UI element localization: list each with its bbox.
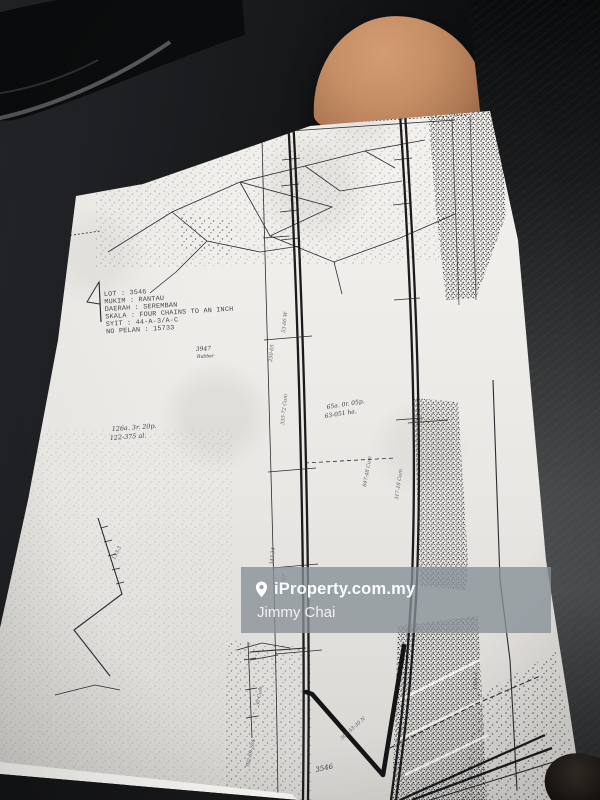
measurement: 1000-0 [473, 671, 480, 690]
door-panel-shape [0, 0, 245, 121]
measurement: 53-00 W [281, 311, 289, 334]
watermark-brand: iProperty.com.my [274, 580, 415, 599]
lot-3947-sub-label: Rubber [196, 353, 215, 360]
measurement: 343-34 [269, 547, 277, 565]
location-pin-icon [255, 581, 268, 598]
title-block: LOT : 3546 MUKIM : RANTAU DAERAH : SEREM… [104, 283, 235, 336]
measurement: 335-72 Cum [280, 394, 289, 426]
watermark-brand-row: iProperty.com.my [255, 580, 551, 599]
car-interior-photo: LOT : 3546 MUKIM : RANTAU DAERAH : SEREM… [0, 0, 600, 800]
measurement: 250-05 [268, 344, 276, 363]
lot-3546-label: 3546 [315, 762, 335, 774]
lot-3947-label: 3947 [196, 345, 212, 353]
measurement: 847-48 Cum [362, 456, 373, 488]
iproperty-watermark: iProperty.com.my Jimmy Chai [241, 567, 551, 633]
watermark-agent-name: Jimmy Chai [257, 604, 551, 621]
north-arrow-icon [87, 282, 101, 322]
measurement: 317-18 Cum [394, 469, 404, 501]
v-boundary [306, 646, 404, 775]
